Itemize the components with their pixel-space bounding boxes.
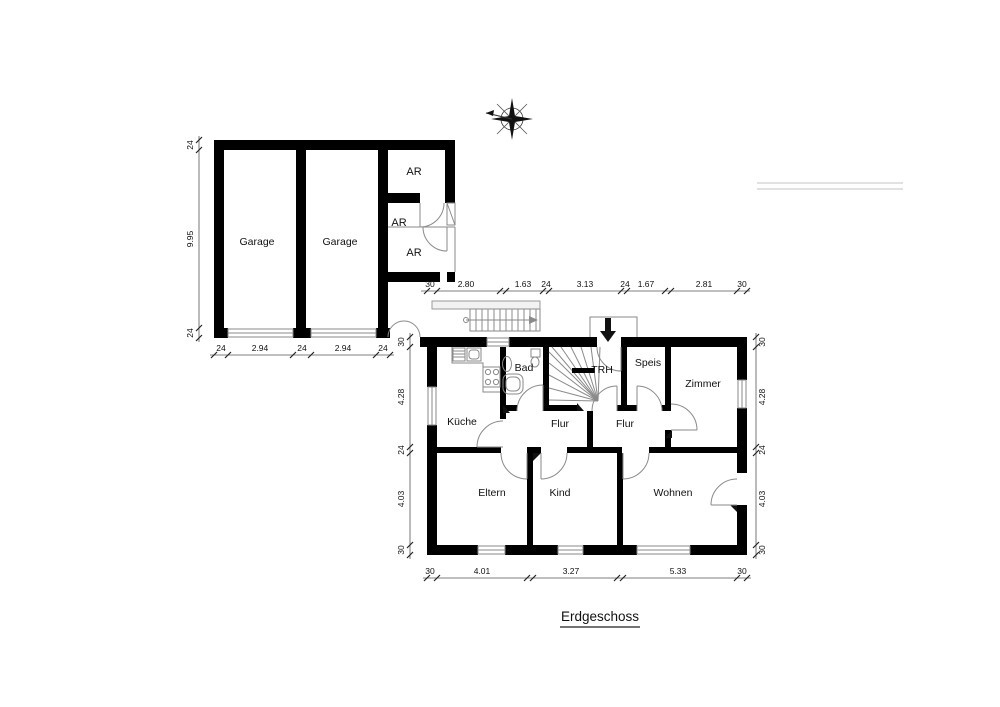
dim-label: 30: [396, 337, 406, 347]
page-title: Erdgeschoss: [561, 609, 639, 624]
room-label-flur1: Flur: [551, 418, 570, 430]
dim-label: 1.67: [638, 279, 655, 289]
dim-chain-house-bottom: 30 4.01 3.27 5.33 30: [423, 566, 751, 581]
room-label-wohnen: Wohnen: [654, 487, 693, 499]
dim-chain-house-top: 30 2.80 1.63 24 3.13 24 1.67 2.81 30: [421, 279, 750, 294]
dim-chain-house-right: 30 4.28 24 4.03 30: [753, 333, 767, 559]
entrance-arrow-icon: [605, 318, 611, 331]
north-arrow-icon: [486, 110, 494, 116]
dim-label: 4.28: [757, 388, 767, 405]
dim-label: 24: [378, 343, 388, 353]
dim-label: 30: [396, 545, 406, 555]
door-arc-kueche: [477, 421, 503, 447]
terrace-line: [757, 183, 903, 189]
dim-label: 4.03: [757, 490, 767, 507]
room-label-ar3: AR: [406, 247, 421, 259]
dim-label: 24: [620, 279, 630, 289]
room-label-ar2: AR: [391, 217, 406, 229]
compass-rose-icon: [486, 98, 533, 140]
room-label-eltern: Eltern: [478, 487, 506, 499]
dim-label: 9.95: [185, 230, 195, 247]
stair-direction-arrow-icon: [529, 316, 538, 324]
dim-label: 24: [541, 279, 551, 289]
dim-label: 5.33: [670, 566, 687, 576]
door-arc-eltern: [501, 453, 527, 479]
dim-label: 2.80: [458, 279, 475, 289]
dim-label: 24: [396, 445, 406, 455]
floorplan-page: Garage Garage AR AR AR Küche Bad TRH Spe…: [0, 0, 1000, 707]
dim-chain-garage-left: 24 9.95 24: [185, 136, 202, 342]
ar-annex-details: [388, 203, 455, 272]
dim-label: 24: [185, 140, 195, 150]
door-arc: [423, 227, 447, 251]
dim-label: 2.94: [252, 343, 269, 353]
room-label-trh: TRH: [591, 364, 613, 376]
door-arc-wohnen: [623, 453, 649, 479]
door-arc-wohnen-terrace: [711, 479, 737, 505]
kitchen-fixtures: [452, 347, 500, 392]
dim-chain-garage-bottom: 24 2.94 24 2.94 24: [210, 343, 394, 358]
dim-label: 3.27: [563, 566, 580, 576]
door-arc-zimmer: [671, 404, 697, 430]
dim-label: 3.13: [577, 279, 594, 289]
dim-chain-house-left: 30 4.28 24 4.03 30: [396, 333, 413, 559]
room-label-flur2: Flur: [616, 418, 635, 430]
drawing-title: Erdgeschoss: [560, 609, 640, 627]
room-label-kind: Kind: [549, 487, 570, 499]
room-label-zimmer: Zimmer: [685, 378, 721, 390]
room-label-garage2: Garage: [322, 236, 357, 248]
door-arc-kind: [541, 453, 567, 479]
door-arc-speis: [637, 386, 662, 411]
external-stairs: [432, 301, 540, 331]
dim-label: 4.01: [474, 566, 491, 576]
yard-gate: [388, 321, 420, 337]
dim-label: 1.63: [515, 279, 532, 289]
dim-label: 4.28: [396, 388, 406, 405]
dim-label: 2.81: [696, 279, 713, 289]
dim-label: 30: [757, 545, 767, 555]
dim-label: 24: [185, 328, 195, 338]
dim-label: 24: [216, 343, 226, 353]
door-arc: [388, 321, 420, 337]
room-label-kueche: Küche: [447, 416, 477, 428]
room-label-bad: Bad: [515, 362, 534, 374]
dim-label: 30: [737, 279, 747, 289]
dim-label: 30: [737, 566, 747, 576]
dim-label: 4.03: [396, 490, 406, 507]
toilet-cistern: [531, 349, 540, 357]
dim-label: 24: [757, 445, 767, 455]
door-arc: [420, 203, 444, 227]
room-label-garage1: Garage: [239, 236, 274, 248]
dim-label: 2.94: [335, 343, 352, 353]
house-interior-walls: [437, 347, 737, 545]
room-label-speis: Speis: [635, 357, 661, 369]
door-arc-bad: [517, 385, 543, 411]
floorplan-drawing: Garage Garage AR AR AR Küche Bad TRH Spe…: [0, 0, 1000, 707]
dim-label: 30: [425, 279, 435, 289]
dim-label: 24: [297, 343, 307, 353]
entrance-arrow-head-icon: [600, 331, 616, 342]
dim-label: 30: [757, 337, 767, 347]
room-label-ar1: AR: [406, 166, 421, 178]
dim-label: 30: [425, 566, 435, 576]
